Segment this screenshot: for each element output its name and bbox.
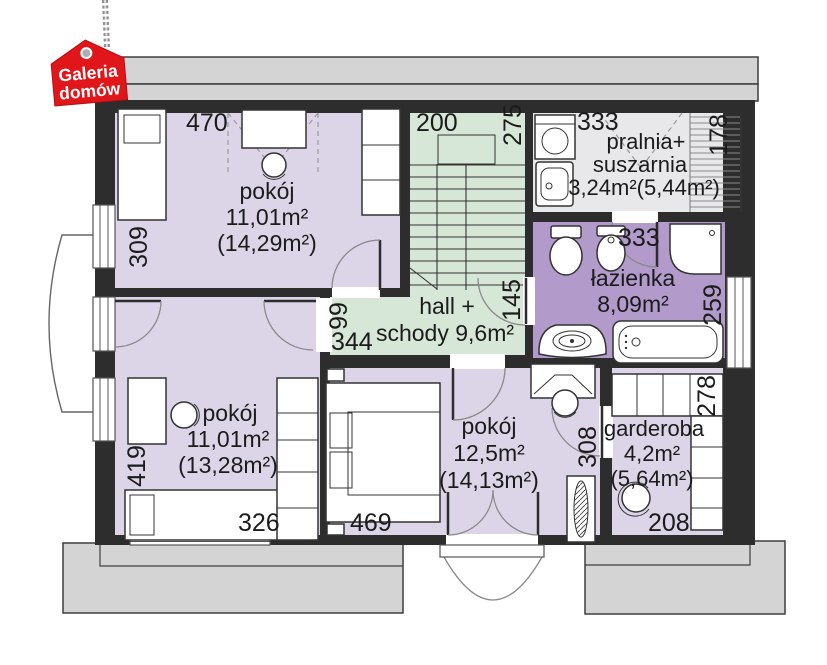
- svg-text:łazienka: łazienka: [591, 265, 676, 291]
- dim-laundry-depth: 178: [705, 114, 733, 156]
- bathroom-sink: [539, 325, 606, 358]
- svg-text:4,2m²: 4,2m²: [624, 441, 680, 466]
- dim-room-bottom-center-depth: 308: [574, 426, 602, 468]
- svg-text:hall +: hall +: [419, 293, 475, 319]
- toilet: [550, 226, 582, 275]
- logo-chain: [105, 0, 107, 48]
- desk-top-left-room: [242, 110, 306, 148]
- svg-text:pokój: pokój: [240, 178, 295, 204]
- dim-wardrobe-room-top: 278: [693, 375, 721, 417]
- desk-bottom-left-room: [128, 378, 166, 444]
- svg-text:11,01m²: 11,01m²: [226, 204, 309, 230]
- dim-room-bottom-center-width: 469: [350, 509, 392, 537]
- floor-plan-page: 470 309 200 275 333 178 333 259 99 344 1…: [0, 0, 827, 665]
- mirror-board: [567, 476, 595, 542]
- dim-staircase-width: 200: [416, 109, 458, 137]
- dim-hall-length: 344: [331, 328, 373, 356]
- bathtub: [613, 321, 723, 363]
- svg-text:11,01m²: 11,01m²: [187, 426, 270, 452]
- dim-room-bottom-left-width: 326: [238, 509, 280, 537]
- svg-text:3,24m²(5,44m²): 3,24m²(5,44m²): [568, 175, 720, 200]
- chair-bottom-center-room: [552, 390, 578, 417]
- label-bathroom: łazienka 8,09m²: [591, 265, 676, 317]
- logo-hole: [81, 48, 92, 59]
- svg-text:12,5m²: 12,5m²: [453, 440, 525, 466]
- bed-top-left-room: [118, 109, 166, 220]
- dim-room-top-left-width: 470: [186, 109, 228, 137]
- dim-bathroom-depth: 259: [699, 284, 727, 326]
- dim-bathroom-width: 333: [618, 224, 660, 252]
- side-balcony-outline: [49, 235, 95, 412]
- terrace-door-swing-outline: [444, 557, 542, 600]
- double-bed: [326, 383, 440, 522]
- svg-text:suszarnia: suszarnia: [593, 152, 688, 177]
- svg-text:8,09m²: 8,09m²: [597, 291, 669, 317]
- roof-overhang-bottom-right: [585, 541, 785, 614]
- floor-plan-drawing: 470 309 200 275 333 178 333 259 99 344 1…: [0, 0, 827, 665]
- svg-text:pokój: pokój: [462, 413, 517, 439]
- wardrobe-bottom-left-room: [277, 378, 318, 540]
- svg-text:(5,64m²): (5,64m²): [610, 466, 693, 491]
- window-left-top: [93, 205, 115, 268]
- window-left-bottom: [93, 378, 115, 441]
- dim-room-bottom-left-depth: 419: [123, 445, 151, 487]
- wardrobe-top-left-room: [362, 109, 400, 215]
- svg-text:(14,29m²): (14,29m²): [217, 230, 317, 256]
- svg-text:(13,28m²): (13,28m²): [178, 452, 278, 478]
- dim-hall-door: 145: [498, 279, 526, 321]
- svg-text:pokój: pokój: [203, 400, 258, 426]
- dim-room-top-left-depth: 309: [125, 226, 153, 268]
- roof-overhang-top: [75, 57, 758, 101]
- washing-machine: [535, 115, 575, 159]
- roof-overhang-bottom-left: [63, 543, 403, 613]
- brand-logo: Galeria domów: [49, 37, 127, 106]
- svg-text:garderoba: garderoba: [604, 416, 705, 441]
- svg-text:pralnia+: pralnia+: [607, 129, 686, 154]
- svg-text:(14,13m²): (14,13m²): [439, 467, 539, 493]
- svg-text:schody 9,6m²: schody 9,6m²: [376, 320, 514, 346]
- window-right-bathroom: [727, 277, 751, 368]
- nightstand-bottom: [327, 524, 344, 535]
- dim-hall-width: 99: [325, 302, 353, 330]
- nightstand-top: [327, 369, 344, 381]
- dim-staircase-depth: 275: [499, 104, 527, 146]
- shower: [670, 224, 721, 274]
- dim-wardrobe-room-bottom: 208: [648, 509, 690, 537]
